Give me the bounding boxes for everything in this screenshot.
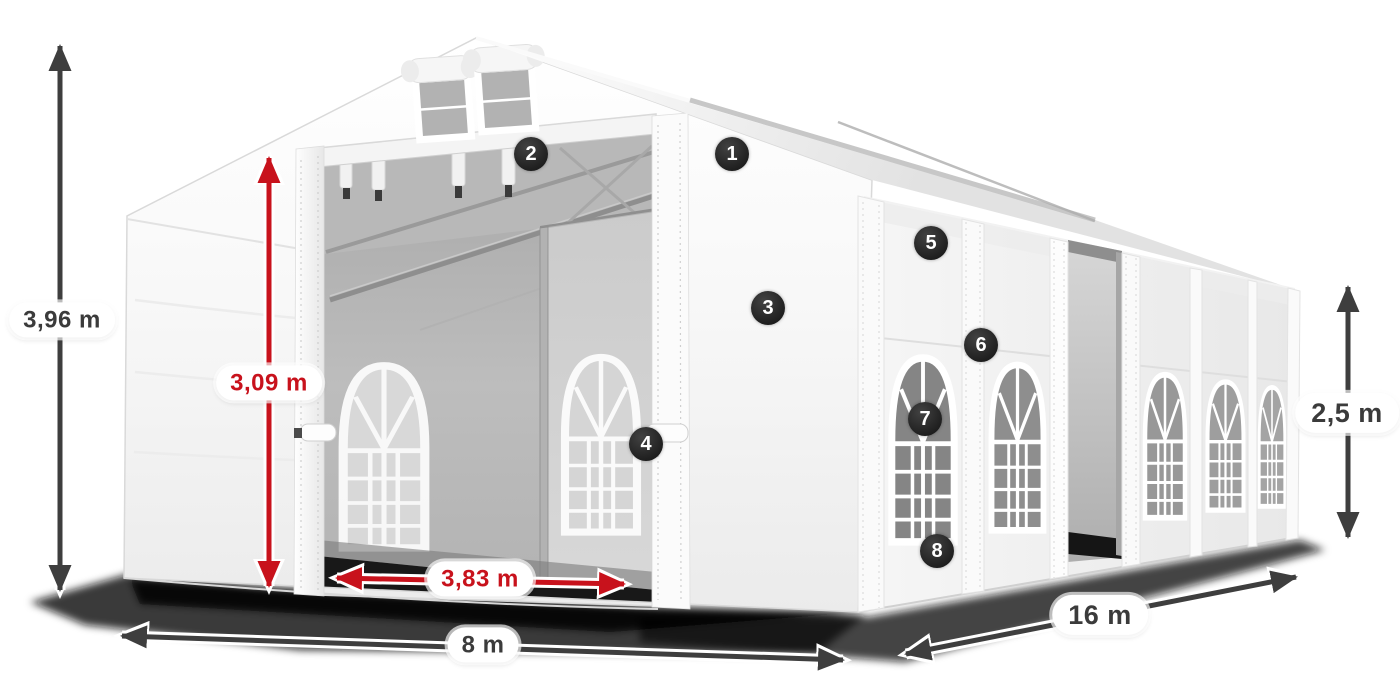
side-window-1 bbox=[892, 358, 954, 542]
dimension-label-total-height: 3,96 m bbox=[9, 302, 115, 337]
side-window-2 bbox=[992, 365, 1044, 530]
dimension-label-tent-width: 8 m bbox=[448, 627, 519, 662]
side-window-5 bbox=[1259, 387, 1285, 506]
feature-marker-4: 4 bbox=[629, 427, 663, 461]
feature-marker-2: 2 bbox=[514, 137, 548, 171]
side-window-3 bbox=[1145, 375, 1185, 518]
dimension-label-tent-length: 16 m bbox=[1052, 595, 1148, 635]
dimension-label-entrance-height: 3,09 m bbox=[216, 365, 322, 400]
product-dimension-image: 3,96 m 3,09 m 3,83 m 8 m 16 m 2,5 m 1 2 … bbox=[0, 0, 1400, 700]
side-window-4 bbox=[1208, 382, 1244, 510]
tent-illustration bbox=[0, 0, 1400, 700]
interior-window bbox=[343, 366, 425, 548]
dimension-label-side-height: 2,5 m bbox=[1295, 393, 1399, 433]
feature-marker-7: 7 bbox=[908, 402, 942, 436]
interior-window bbox=[565, 357, 637, 532]
tent-interior bbox=[318, 110, 658, 610]
side-doorway bbox=[1068, 240, 1122, 562]
feature-marker-1: 1 bbox=[715, 137, 749, 171]
dimension-label-entrance-width: 3,83 m bbox=[427, 561, 533, 596]
feature-marker-5: 5 bbox=[914, 226, 948, 260]
feature-marker-8: 8 bbox=[920, 534, 954, 568]
feature-marker-3: 3 bbox=[751, 291, 785, 325]
feature-marker-6: 6 bbox=[964, 328, 998, 362]
